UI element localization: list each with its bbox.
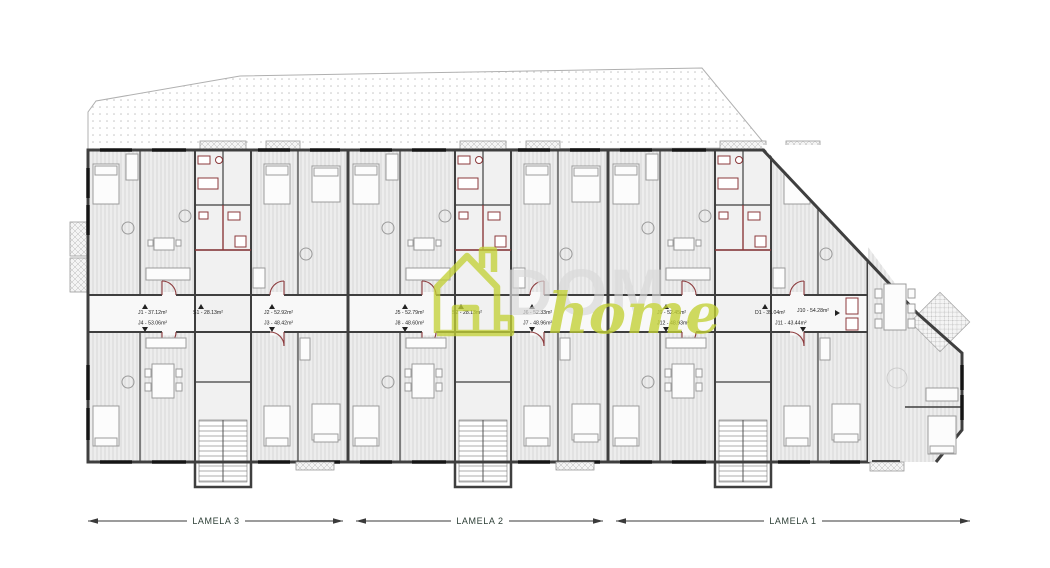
apartment-label: J11 - 43.44m² xyxy=(775,321,807,327)
apartment-label: J10 - 54.28m² xyxy=(797,308,829,314)
apartment-label: J5 - 52.79m² xyxy=(395,310,424,316)
dimension-bar: LAMELA 3 LAMELA 2 LAMELA 1 xyxy=(88,515,970,526)
section-label-lamela-1: LAMELA 1 xyxy=(769,516,816,526)
apartment-label: J2 - 52.92m² xyxy=(264,310,293,316)
section-label-lamela-3: LAMELA 3 xyxy=(192,516,239,526)
section-label-lamela-2: LAMELA 2 xyxy=(456,516,503,526)
apartment-label: D1 - 35.04m² xyxy=(755,310,786,316)
right-wing-balcony xyxy=(870,462,904,471)
floor-plan-page: J1 - 37.12m² J4 - 53.06m² S1 - 28.13m² J… xyxy=(0,0,1050,568)
watermark-home-text: home xyxy=(548,281,721,347)
apartment-label: J4 - 53.06m² xyxy=(138,321,167,327)
roof-terrace xyxy=(88,68,768,150)
apartment-label: J8 - 48.60m² xyxy=(395,321,424,327)
floor-plan-drawing: J1 - 37.12m² J4 - 53.06m² S1 - 28.13m² J… xyxy=(0,0,1050,568)
apartment-label: J1 - 37.12m² xyxy=(138,310,167,316)
left-balconies xyxy=(70,222,88,292)
right-wing-kitchen xyxy=(846,298,858,330)
apartment-label: S1 - 28.13m² xyxy=(193,310,223,316)
apartment-label: J3 - 48.42m² xyxy=(264,321,293,327)
